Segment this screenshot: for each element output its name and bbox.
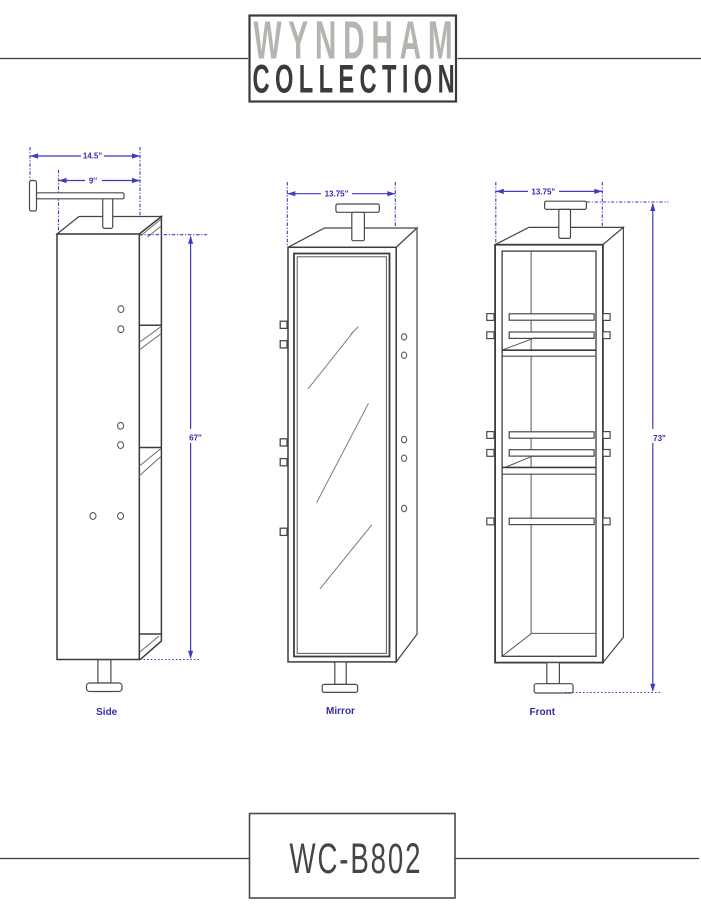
svg-text:Mirror: Mirror <box>326 706 355 717</box>
svg-text:WC-B802: WC-B802 <box>290 835 421 882</box>
svg-text:13.75": 13.75" <box>531 187 555 196</box>
svg-text:Side: Side <box>96 707 118 718</box>
svg-text:COLLECTION: COLLECTION <box>253 57 455 101</box>
svg-text:73": 73" <box>653 434 666 443</box>
svg-text:67": 67" <box>189 434 202 443</box>
svg-text:13.75": 13.75" <box>325 190 349 199</box>
svg-text:Front: Front <box>530 707 556 718</box>
svg-text:9'': 9'' <box>89 177 97 186</box>
svg-text:14.5": 14.5" <box>83 152 103 161</box>
